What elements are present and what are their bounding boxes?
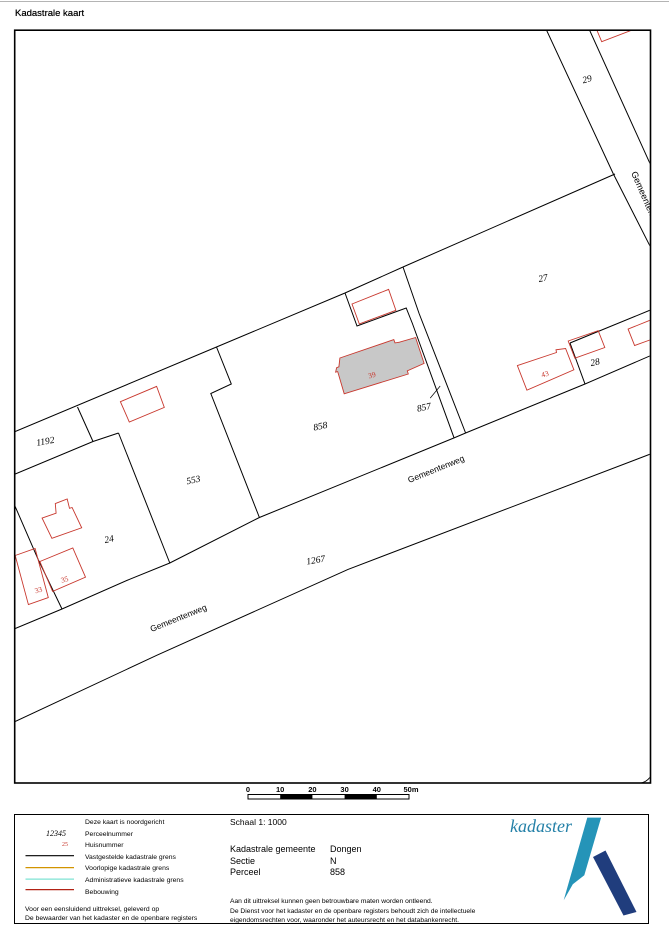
svg-text:kadaster: kadaster	[510, 816, 573, 836]
